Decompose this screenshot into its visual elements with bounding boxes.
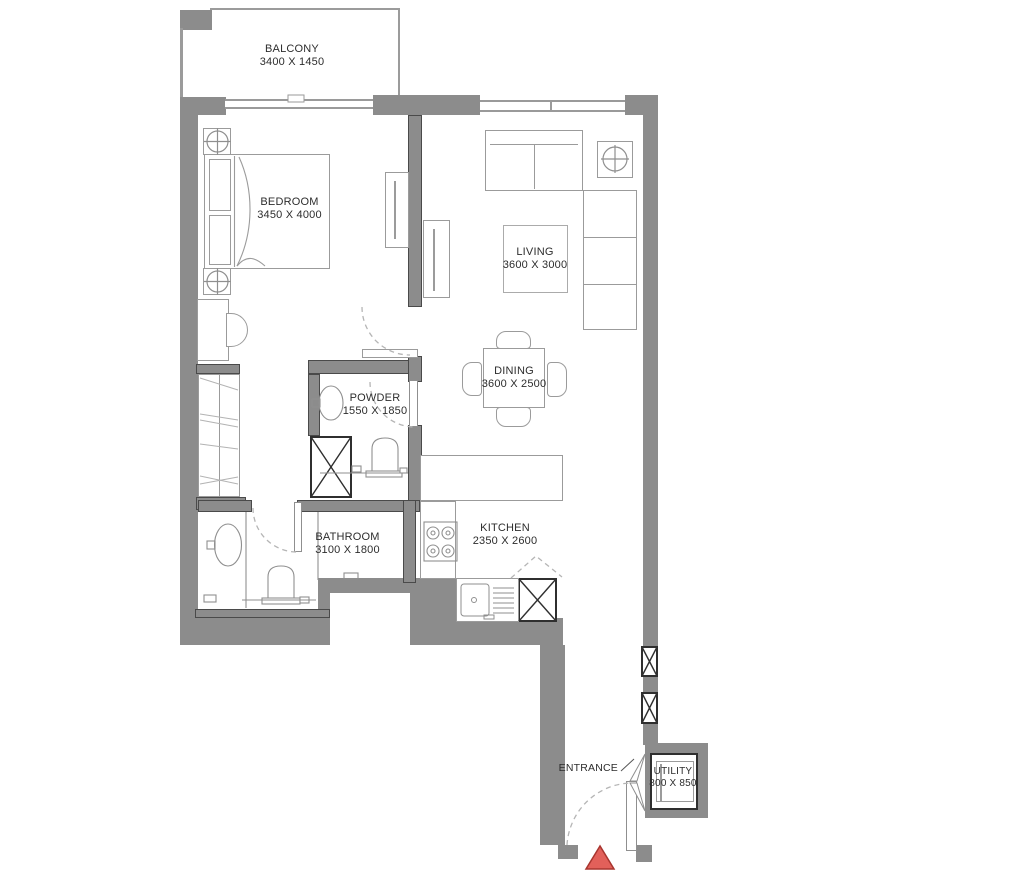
slider-handle — [288, 95, 304, 102]
room-name: LIVING — [495, 246, 575, 259]
room-dims: 3450 X 4000 — [212, 209, 367, 222]
room-dims: 3600 X 3000 — [495, 259, 575, 272]
bathroom-toilet-icon — [204, 566, 309, 604]
room-name: BEDROOM — [212, 196, 367, 209]
room-label-balcony: BALCONY 3400 X 1450 — [212, 43, 372, 69]
room-label-utility: UTILITY 800 X 850 — [642, 766, 704, 790]
room-name: BALCONY — [212, 43, 372, 56]
bathroom-door-arc — [253, 508, 297, 552]
floor-plan: BALCONY 3400 X 1450 BEDROOM 3450 X 4000 … — [0, 0, 1011, 872]
lamp-icon — [204, 128, 231, 155]
room-dims: 3400 X 1450 — [212, 56, 372, 69]
lamp-icon — [601, 145, 629, 173]
entrance-label: ENTRANCE — [552, 762, 618, 775]
room-dims: 3600 X 2500 — [474, 378, 554, 391]
room-name: KITCHEN — [455, 522, 555, 535]
kitchen-sink-icon — [461, 584, 514, 619]
room-dims: 3100 X 1800 — [300, 544, 395, 557]
entrance-label-tick — [621, 759, 634, 771]
room-label-living: LIVING 3600 X 3000 — [495, 246, 575, 272]
entrance-door-arc — [567, 783, 630, 845]
dishwasher-open-outline — [511, 556, 562, 578]
shaft-x-marks — [311, 437, 657, 723]
fixtures-overlay — [0, 0, 1011, 872]
room-label-dining: DINING 3600 X 2500 — [474, 365, 554, 391]
room-name: POWDER — [330, 392, 420, 405]
stove-icon — [424, 522, 457, 561]
room-label-kitchen: KITCHEN 2350 X 2600 — [455, 522, 555, 548]
room-dims: 800 X 850 — [642, 778, 704, 790]
room-label-bathroom: BATHROOM 3100 X 1800 — [300, 531, 395, 557]
room-label-powder: POWDER 1550 X 1850 — [330, 392, 420, 418]
closet-hangers — [200, 378, 238, 484]
room-name: DINING — [474, 365, 554, 378]
powder-toilet-icon — [352, 438, 407, 477]
bedroom-door-arc — [362, 307, 410, 355]
entrance-marker-icon — [586, 846, 614, 869]
room-label-bedroom: BEDROOM 3450 X 4000 — [212, 196, 367, 222]
room-name: BATHROOM — [300, 531, 395, 544]
room-name: UTILITY — [642, 766, 704, 778]
room-dims: 2350 X 2600 — [455, 535, 555, 548]
lamp-icon — [204, 268, 231, 295]
room-dims: 1550 X 1850 — [330, 405, 420, 418]
